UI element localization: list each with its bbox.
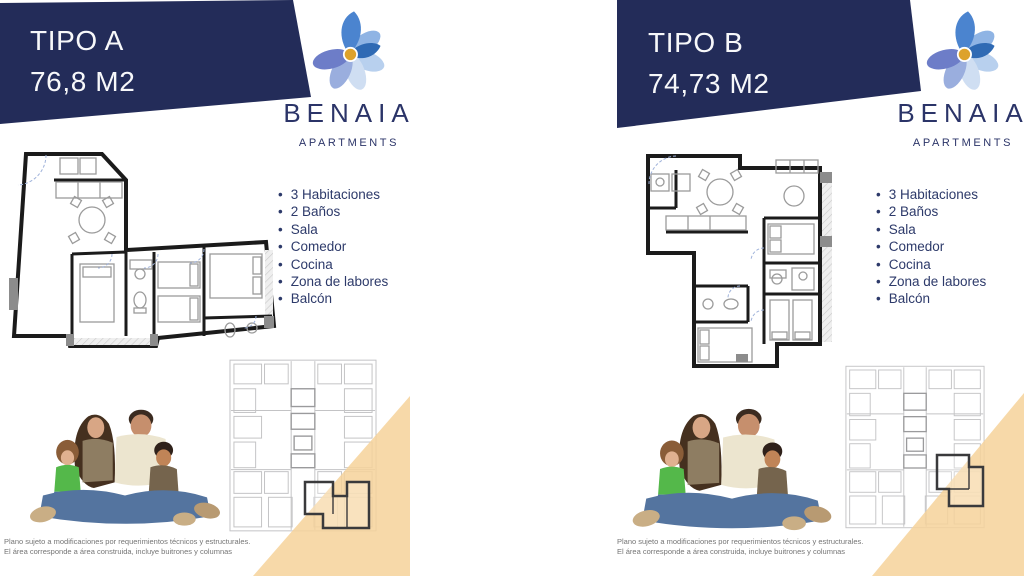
card-tipo-b: TIPO B 74,73 M2 BENAIA APARTMENTS bbox=[512, 0, 1024, 576]
card-tipo-a: TIPO A 76,8 M2 BENAIA APARTMENTS bbox=[0, 0, 512, 576]
brand-name: BENAIA bbox=[244, 98, 454, 129]
disclaimer-text: Plano sujeto a modificaciones por requer… bbox=[4, 537, 250, 557]
disclaimer-line: Plano sujeto a modificaciones por requer… bbox=[4, 537, 250, 547]
page-title: TIPO B 74,73 M2 bbox=[648, 22, 770, 104]
disclaimer-text: Plano sujeto a modificaciones por requer… bbox=[617, 537, 863, 557]
benaia-flower-logo-icon bbox=[312, 10, 386, 96]
floor-plan-b-image bbox=[636, 148, 836, 370]
feature-item: 3 Habitaciones bbox=[876, 186, 986, 203]
feature-item: 3 Habitaciones bbox=[278, 186, 388, 203]
feature-item: Comedor bbox=[278, 238, 388, 255]
family-photo bbox=[622, 404, 842, 542]
brochure-canvas: TIPO A 76,8 M2 BENAIA APARTMENTS bbox=[0, 0, 1024, 576]
brand-tagline: APARTMENTS bbox=[858, 137, 1024, 149]
brand-tagline: APARTMENTS bbox=[244, 137, 454, 149]
benaia-logo: BENAIA APARTMENTS bbox=[244, 10, 454, 149]
highlighted-unit-outline bbox=[935, 453, 987, 510]
disclaimer-line: El área corresponde a área construida, i… bbox=[617, 547, 863, 557]
feature-item: 2 Baños bbox=[876, 203, 986, 220]
feature-list: 3 Habitaciones 2 Baños Sala Comedor Coci… bbox=[876, 186, 986, 308]
floor-plan-a-image bbox=[8, 150, 280, 362]
feature-item: Cocina bbox=[876, 256, 986, 273]
disclaimer-line: El área corresponde a área construida, i… bbox=[4, 547, 250, 557]
feature-list: 3 Habitaciones 2 Baños Sala Comedor Coci… bbox=[278, 186, 388, 308]
page-title: TIPO A 76,8 M2 bbox=[30, 20, 135, 102]
benaia-logo: BENAIA APARTMENTS bbox=[858, 10, 1024, 149]
disclaimer-line: Plano sujeto a modificaciones por requer… bbox=[617, 537, 863, 547]
benaia-flower-logo-icon bbox=[926, 10, 1000, 96]
family-photo bbox=[26, 402, 224, 540]
type-label: TIPO B bbox=[648, 22, 770, 63]
feature-item: Zona de labores bbox=[278, 273, 388, 290]
feature-item: Balcón bbox=[278, 290, 388, 307]
highlighted-unit-outline bbox=[303, 480, 373, 532]
feature-item: Zona de labores bbox=[876, 273, 986, 290]
area-label: 76,8 M2 bbox=[30, 61, 135, 102]
feature-item: 2 Baños bbox=[278, 203, 388, 220]
feature-item: Balcón bbox=[876, 290, 986, 307]
feature-item: Sala bbox=[278, 221, 388, 238]
feature-item: Sala bbox=[876, 221, 986, 238]
type-label: TIPO A bbox=[30, 20, 135, 61]
brand-name: BENAIA bbox=[858, 98, 1024, 129]
area-label: 74,73 M2 bbox=[648, 63, 770, 104]
feature-item: Comedor bbox=[876, 238, 986, 255]
feature-item: Cocina bbox=[278, 256, 388, 273]
